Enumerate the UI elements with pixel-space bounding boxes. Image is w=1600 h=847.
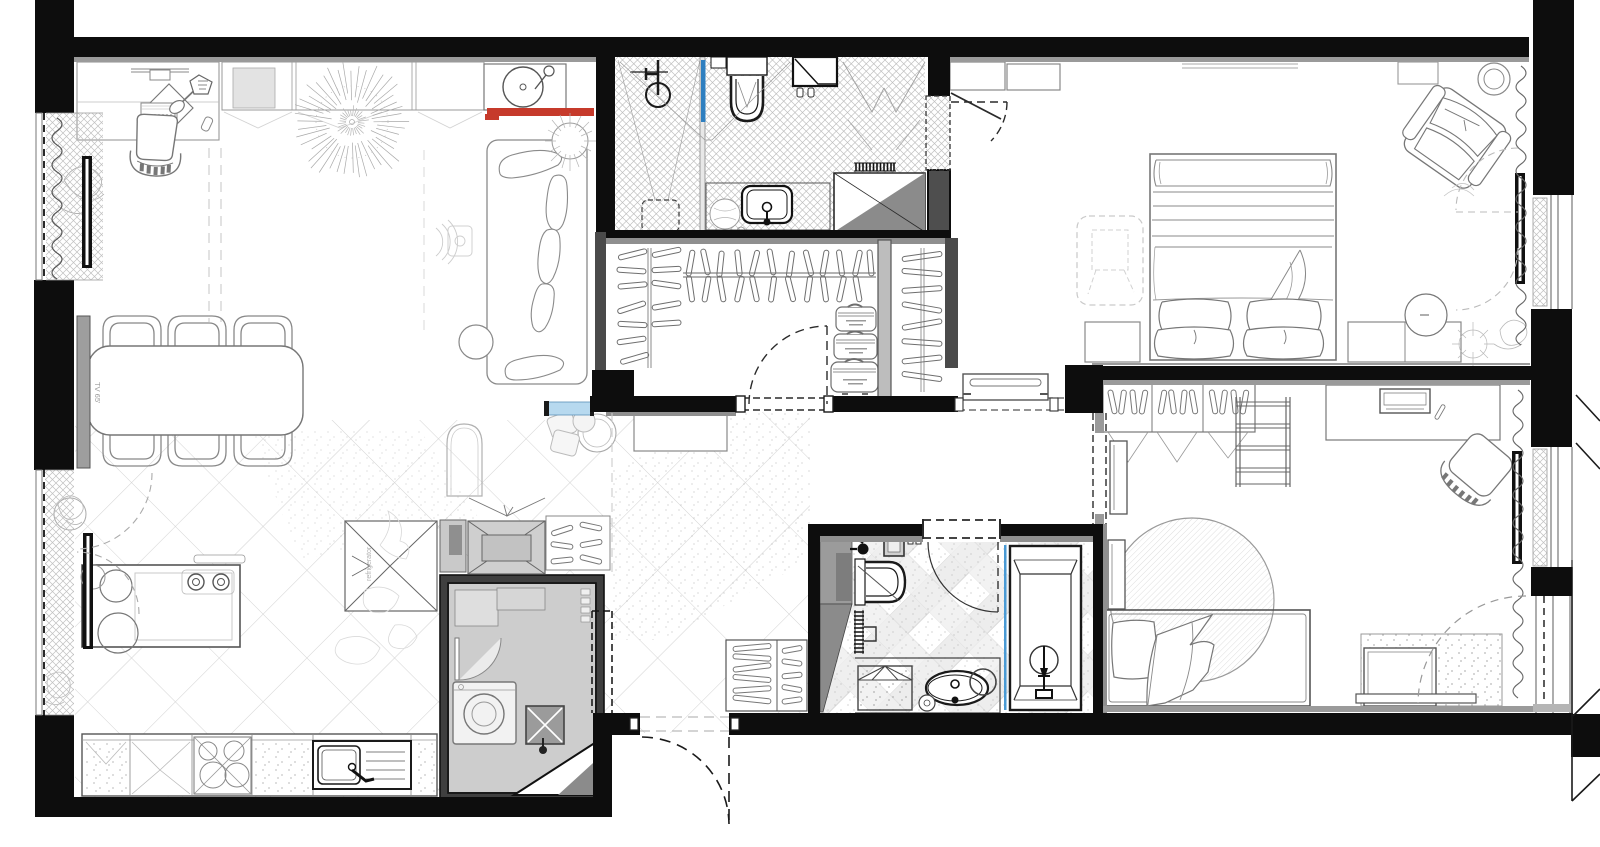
svg-text:TV 65': TV 65' bbox=[93, 382, 102, 404]
svg-text:refrigerator: refrigerator bbox=[366, 546, 373, 581]
